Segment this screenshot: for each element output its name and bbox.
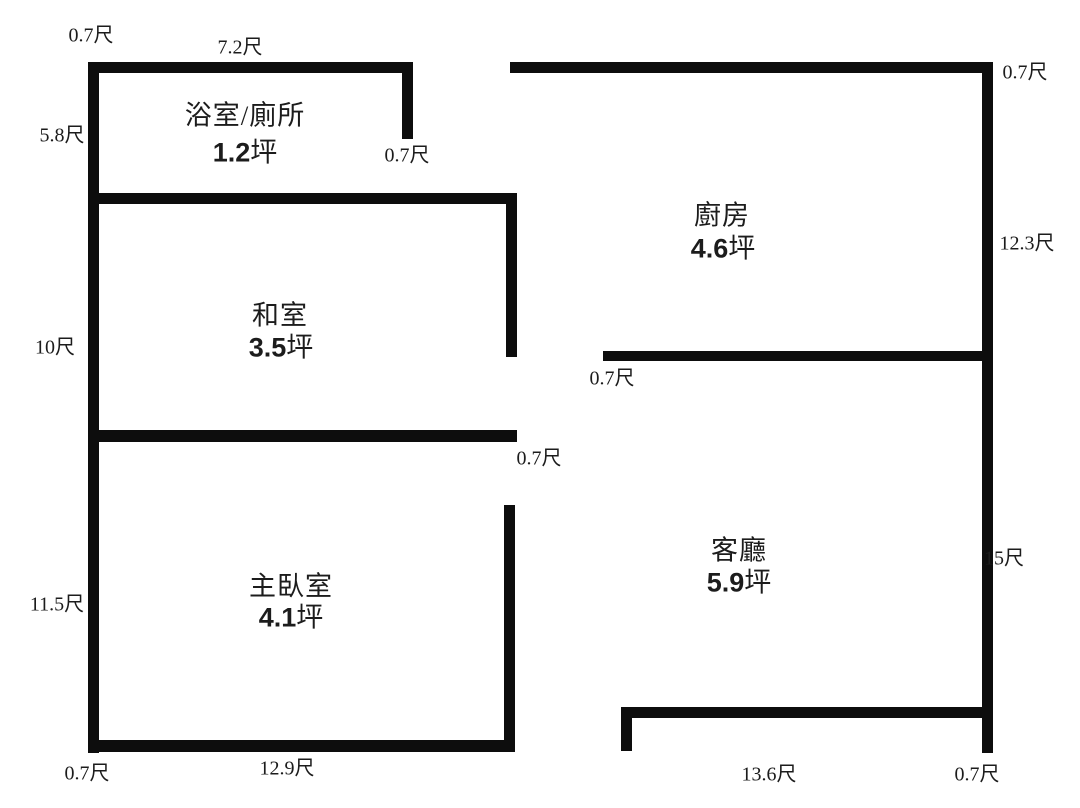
dim-master-bedroom-left-height: 11.5尺 <box>30 588 84 617</box>
room-area-washitsu-unit: 坪 <box>286 333 313 363</box>
room-area-bathroom-unit: 坪 <box>250 138 277 168</box>
wall-bathroom-top <box>88 62 413 73</box>
wall-kitchen-living-divider <box>603 351 993 361</box>
dim-bathroom-left-height: 5.8尺 <box>40 119 85 148</box>
dim-bottom-left-wall-thickness: 0.7尺 <box>65 757 110 786</box>
room-area-kitchen: 4.6坪 <box>691 227 756 266</box>
room-label-bathroom: 浴室/廁所 <box>185 94 306 133</box>
wall-master-bedroom-right <box>504 505 515 752</box>
room-area-master-bedroom-unit: 坪 <box>296 603 323 633</box>
room-area-master-bedroom: 4.1坪 <box>259 596 324 635</box>
wall-living-entry-stub <box>621 707 632 751</box>
dim-top-right-wall-thickness: 0.7尺 <box>1003 56 1048 85</box>
room-area-master-bedroom-value: 4.1 <box>259 603 297 633</box>
dim-top-left-wall-thickness: 0.7尺 <box>69 19 114 48</box>
wall-washitsu-bottom <box>88 430 517 442</box>
wall-washitsu-right <box>506 193 517 357</box>
floor-plan: 浴室/廁所 1.2坪 和室 3.5坪 主臥室 4.1坪 廚房 4.6坪 客廳 5… <box>0 0 1080 808</box>
wall-right <box>982 62 993 753</box>
room-area-kitchen-value: 4.6 <box>691 234 729 264</box>
dim-washitsu-left-height: 10尺 <box>35 331 75 360</box>
wall-kitchen-top <box>510 62 993 73</box>
wall-master-bedroom-bottom <box>88 740 515 752</box>
room-area-living-room-value: 5.9 <box>707 568 745 598</box>
wall-left <box>88 62 99 753</box>
room-area-bathroom-value: 1.2 <box>213 138 251 168</box>
room-area-living-room-unit: 坪 <box>744 568 771 598</box>
dim-bathroom-right-wall-thickness: 0.7尺 <box>385 139 430 168</box>
dim-washitsu-bottom-wall-thickness: 0.7尺 <box>517 442 562 471</box>
room-area-washitsu: 3.5坪 <box>249 326 314 365</box>
wall-bathroom-right <box>402 62 413 139</box>
room-area-bathroom: 1.2坪 <box>213 131 278 170</box>
dim-living-room-right-height: 15尺 <box>984 542 1024 571</box>
room-area-living-room: 5.9坪 <box>707 561 772 600</box>
dim-bathroom-top-width: 7.2尺 <box>218 31 263 60</box>
dim-kitchen-right-height: 12.3尺 <box>1000 227 1055 256</box>
wall-bathroom-washitsu-divider <box>88 193 517 204</box>
wall-living-bottom <box>621 707 993 718</box>
room-area-kitchen-unit: 坪 <box>728 234 755 264</box>
room-area-washitsu-value: 3.5 <box>249 333 287 363</box>
dim-divider-wall-thickness: 0.7尺 <box>590 362 635 391</box>
dim-master-bedroom-bottom-width: 12.9尺 <box>260 752 315 781</box>
dim-bottom-right-wall-thickness: 0.7尺 <box>955 758 1000 787</box>
dim-living-room-bottom-width: 13.6尺 <box>742 758 797 787</box>
